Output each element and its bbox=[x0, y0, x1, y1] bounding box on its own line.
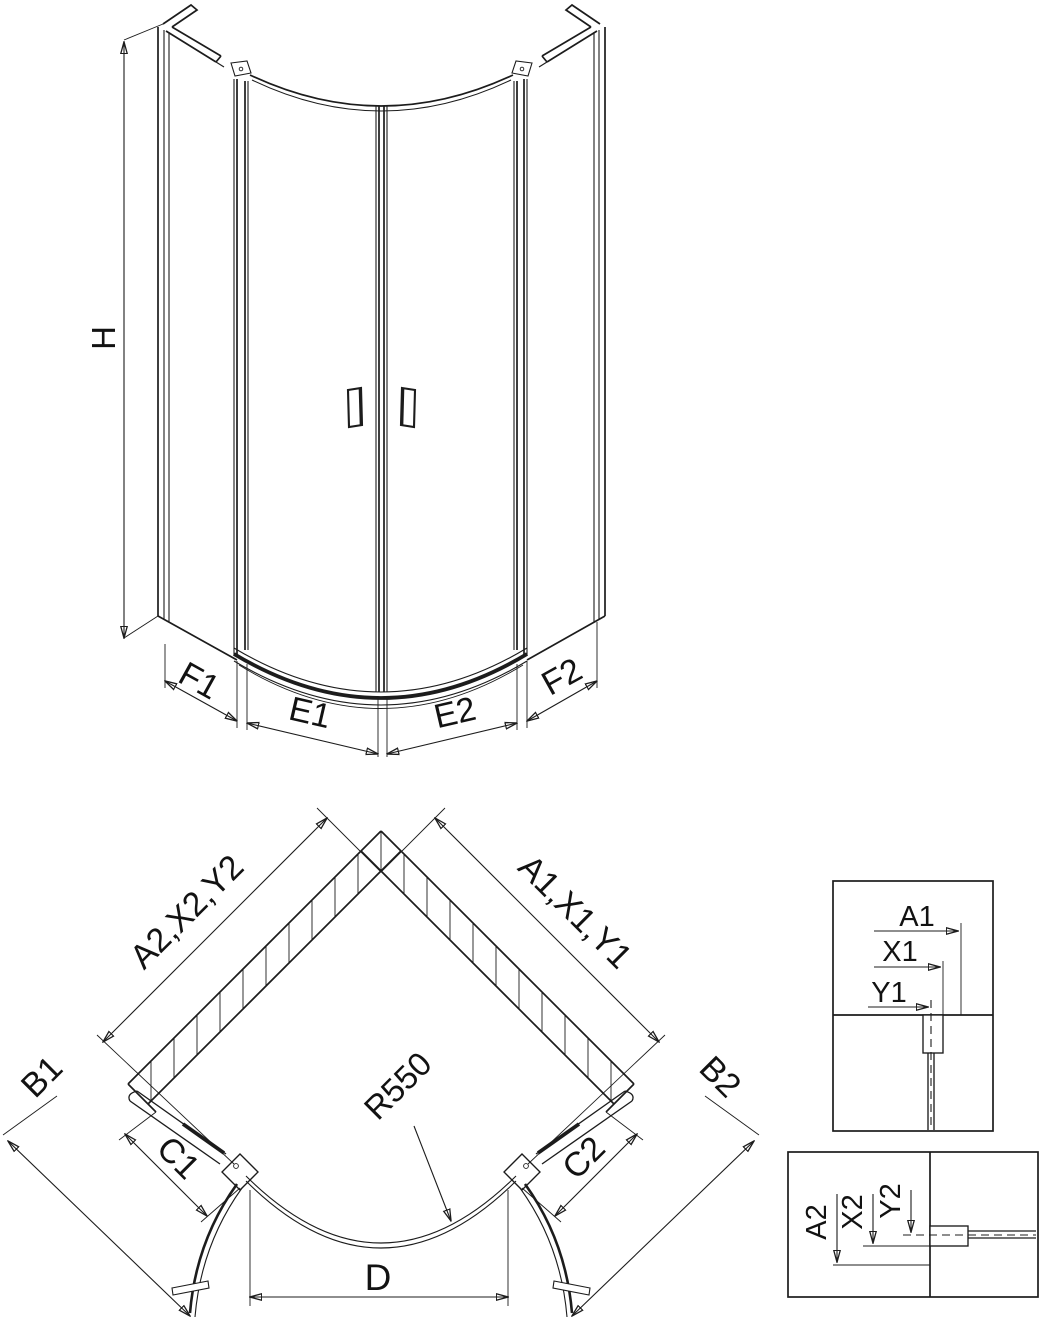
open-door-left bbox=[172, 1184, 242, 1317]
detail2-label-y2: Y2 bbox=[875, 1183, 907, 1218]
door-pivot-right bbox=[504, 1154, 540, 1190]
shower-enclosure-diagram: H bbox=[0, 0, 1049, 1321]
label-d: D bbox=[365, 1257, 392, 1298]
plan-view: A2,X2,Y2 A1,X1,Y1 B1 B2 C1 C2 D R550 bbox=[3, 808, 759, 1317]
front-elevation-view: H bbox=[85, 5, 605, 757]
detail1-label-y1: Y1 bbox=[871, 977, 906, 1009]
open-door-right bbox=[520, 1184, 590, 1317]
label-c2: C2 bbox=[555, 1129, 613, 1187]
detail2-label-a2: A2 bbox=[801, 1204, 833, 1239]
detail-view-a2x2y2: A2 X2 Y2 bbox=[788, 1152, 1038, 1297]
label-b1: B1 bbox=[14, 1049, 70, 1105]
label-wall-left-dims: A2,X2,Y2 bbox=[123, 848, 251, 976]
label-f2: F2 bbox=[535, 651, 588, 703]
shower-tray-front bbox=[234, 648, 527, 709]
label-e1: E1 bbox=[285, 690, 334, 736]
detail1-label-a1: A1 bbox=[899, 901, 934, 933]
detail1-label-x1: X1 bbox=[882, 936, 917, 968]
door-handle-left bbox=[348, 388, 362, 427]
door-pivot-left bbox=[222, 1154, 258, 1190]
detail2-label-x2: X2 bbox=[837, 1194, 869, 1229]
detail-view-a1x1y1: A1 X1 Y1 bbox=[833, 881, 993, 1131]
label-e2: E2 bbox=[430, 690, 479, 736]
label-f1: F1 bbox=[172, 655, 225, 707]
label-c1: C1 bbox=[149, 1129, 207, 1187]
label-wall-right-dims: A1,X1,Y1 bbox=[511, 848, 639, 976]
technical-drawing-page: H bbox=[0, 0, 1049, 1321]
label-b2: B2 bbox=[692, 1049, 748, 1105]
label-radius-r550: R550 bbox=[357, 1045, 439, 1127]
wall-hatching-left bbox=[151, 831, 381, 1101]
label-height-h: H bbox=[85, 326, 122, 350]
door-handle-right bbox=[401, 388, 415, 427]
